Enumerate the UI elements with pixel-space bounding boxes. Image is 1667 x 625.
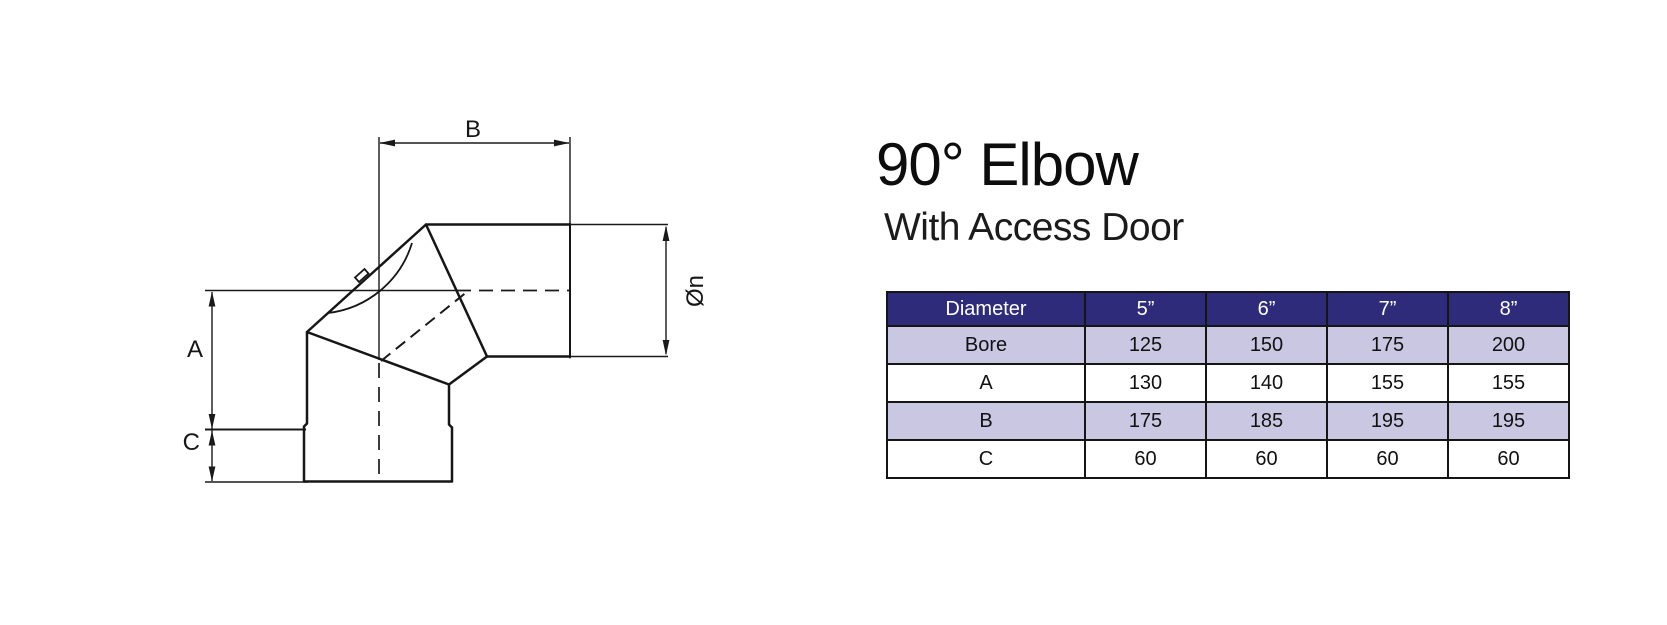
dimensions-table: Diameter 5” 6” 7” 8” Bore 125 150 175 20… — [886, 291, 1570, 479]
table-row-c: C 60 60 60 60 — [887, 440, 1569, 478]
table-row-bore: Bore 125 150 175 200 — [887, 326, 1569, 364]
row-label: C — [887, 440, 1085, 478]
page-title: 90° Elbow — [876, 130, 1138, 199]
dim-label-c: C — [183, 429, 200, 456]
cell-value: 140 — [1206, 364, 1327, 402]
cell-value: 60 — [1448, 440, 1569, 478]
elbow-outline — [304, 224, 570, 482]
cell-value: 125 — [1085, 326, 1206, 364]
cell-value: 130 — [1085, 364, 1206, 402]
cell-value: 195 — [1448, 402, 1569, 440]
row-label: Bore — [887, 326, 1085, 364]
cell-value: 155 — [1327, 364, 1448, 402]
elbow-technical-drawing: B A C Øn — [0, 0, 780, 625]
cell-value: 60 — [1085, 440, 1206, 478]
page-subtitle: With Access Door — [884, 206, 1184, 250]
col-header-6in: 6” — [1206, 292, 1327, 326]
col-header-diameter: Diameter — [887, 292, 1085, 326]
col-header-7in: 7” — [1327, 292, 1448, 326]
cell-value: 175 — [1085, 402, 1206, 440]
dim-label-diameter: Øn — [682, 275, 709, 307]
row-label: B — [887, 402, 1085, 440]
table-row-a: A 130 140 155 155 — [887, 364, 1569, 402]
page: B A C Øn 90° Elbow With Access Door Diam… — [0, 0, 1667, 625]
cell-value: 185 — [1206, 402, 1327, 440]
cell-value: 60 — [1206, 440, 1327, 478]
col-header-5in: 5” — [1085, 292, 1206, 326]
dim-label-b: B — [465, 116, 481, 143]
dim-label-a: A — [187, 336, 203, 363]
col-header-8in: 8” — [1448, 292, 1569, 326]
centerlines-dashed — [379, 291, 569, 482]
table-header-row: Diameter 5” 6” 7” 8” — [887, 292, 1569, 326]
cell-value: 60 — [1327, 440, 1448, 478]
access-door-handle — [355, 269, 369, 282]
row-label: A — [887, 364, 1085, 402]
cell-value: 155 — [1448, 364, 1569, 402]
dimension-lines — [205, 137, 668, 482]
cell-value: 175 — [1327, 326, 1448, 364]
cell-value: 150 — [1206, 326, 1327, 364]
cell-value: 195 — [1327, 402, 1448, 440]
table-row-b: B 175 185 195 195 — [887, 402, 1569, 440]
cell-value: 200 — [1448, 326, 1569, 364]
